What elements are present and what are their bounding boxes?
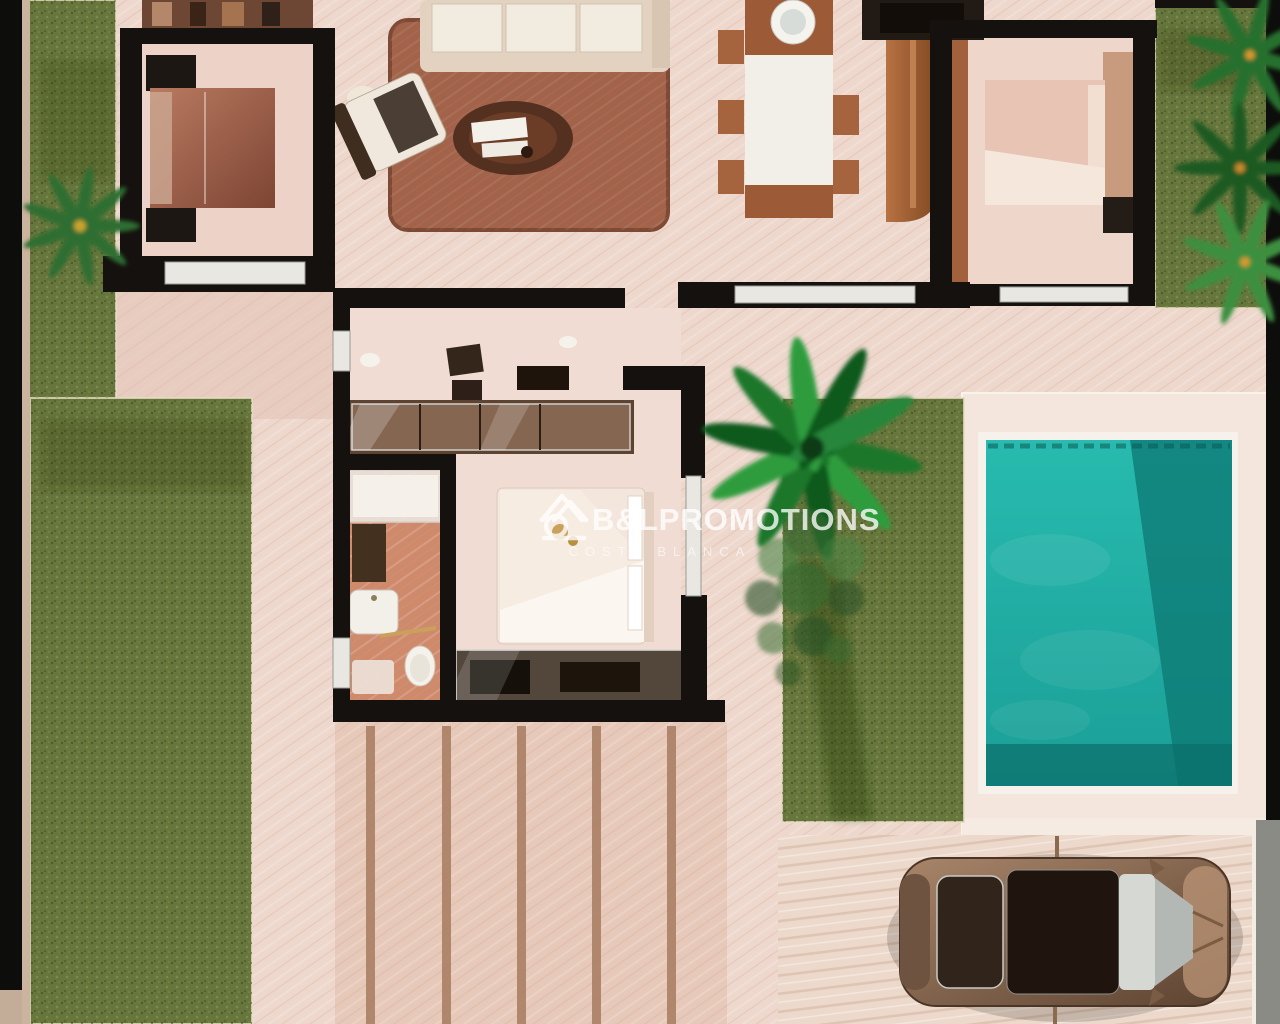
stool bbox=[446, 344, 484, 376]
car-roof bbox=[1007, 870, 1119, 994]
watermark-brand: B&LPROMOTIONS bbox=[592, 502, 881, 537]
window bbox=[735, 286, 915, 303]
nightstand bbox=[146, 55, 196, 91]
floor-plan-render: B&LPROMOTIONS COSTA BLANCA bbox=[0, 0, 1280, 1024]
window bbox=[333, 638, 350, 688]
car bbox=[887, 836, 1243, 1024]
headboard bbox=[1103, 52, 1133, 197]
floor-plan-svg: B&LPROMOTIONS COSTA BLANCA bbox=[0, 0, 1280, 1024]
bath-cabinet bbox=[352, 524, 386, 582]
right-edge bbox=[1266, 0, 1280, 822]
wardrobe bbox=[340, 400, 634, 454]
right-edge-lower bbox=[1256, 820, 1280, 1024]
window bbox=[1000, 287, 1128, 302]
window bbox=[333, 331, 350, 371]
dining-chair bbox=[833, 95, 859, 135]
dining-chair bbox=[718, 100, 744, 134]
rear-terrace bbox=[335, 722, 727, 1024]
swimming-pool bbox=[978, 432, 1238, 794]
dining-chair bbox=[833, 160, 859, 194]
dining-chair bbox=[718, 160, 744, 194]
console bbox=[517, 366, 569, 390]
car-rear-glass bbox=[937, 876, 1003, 988]
pool-bottom-shading bbox=[986, 744, 1232, 786]
window bbox=[165, 262, 305, 284]
closet-top-right bbox=[952, 38, 968, 284]
nightstand bbox=[1103, 197, 1133, 233]
left-edge bbox=[0, 0, 22, 1024]
watermark-subtitle: COSTA BLANCA bbox=[569, 544, 752, 559]
nightstand bbox=[146, 208, 196, 242]
dining-chair bbox=[718, 30, 744, 64]
